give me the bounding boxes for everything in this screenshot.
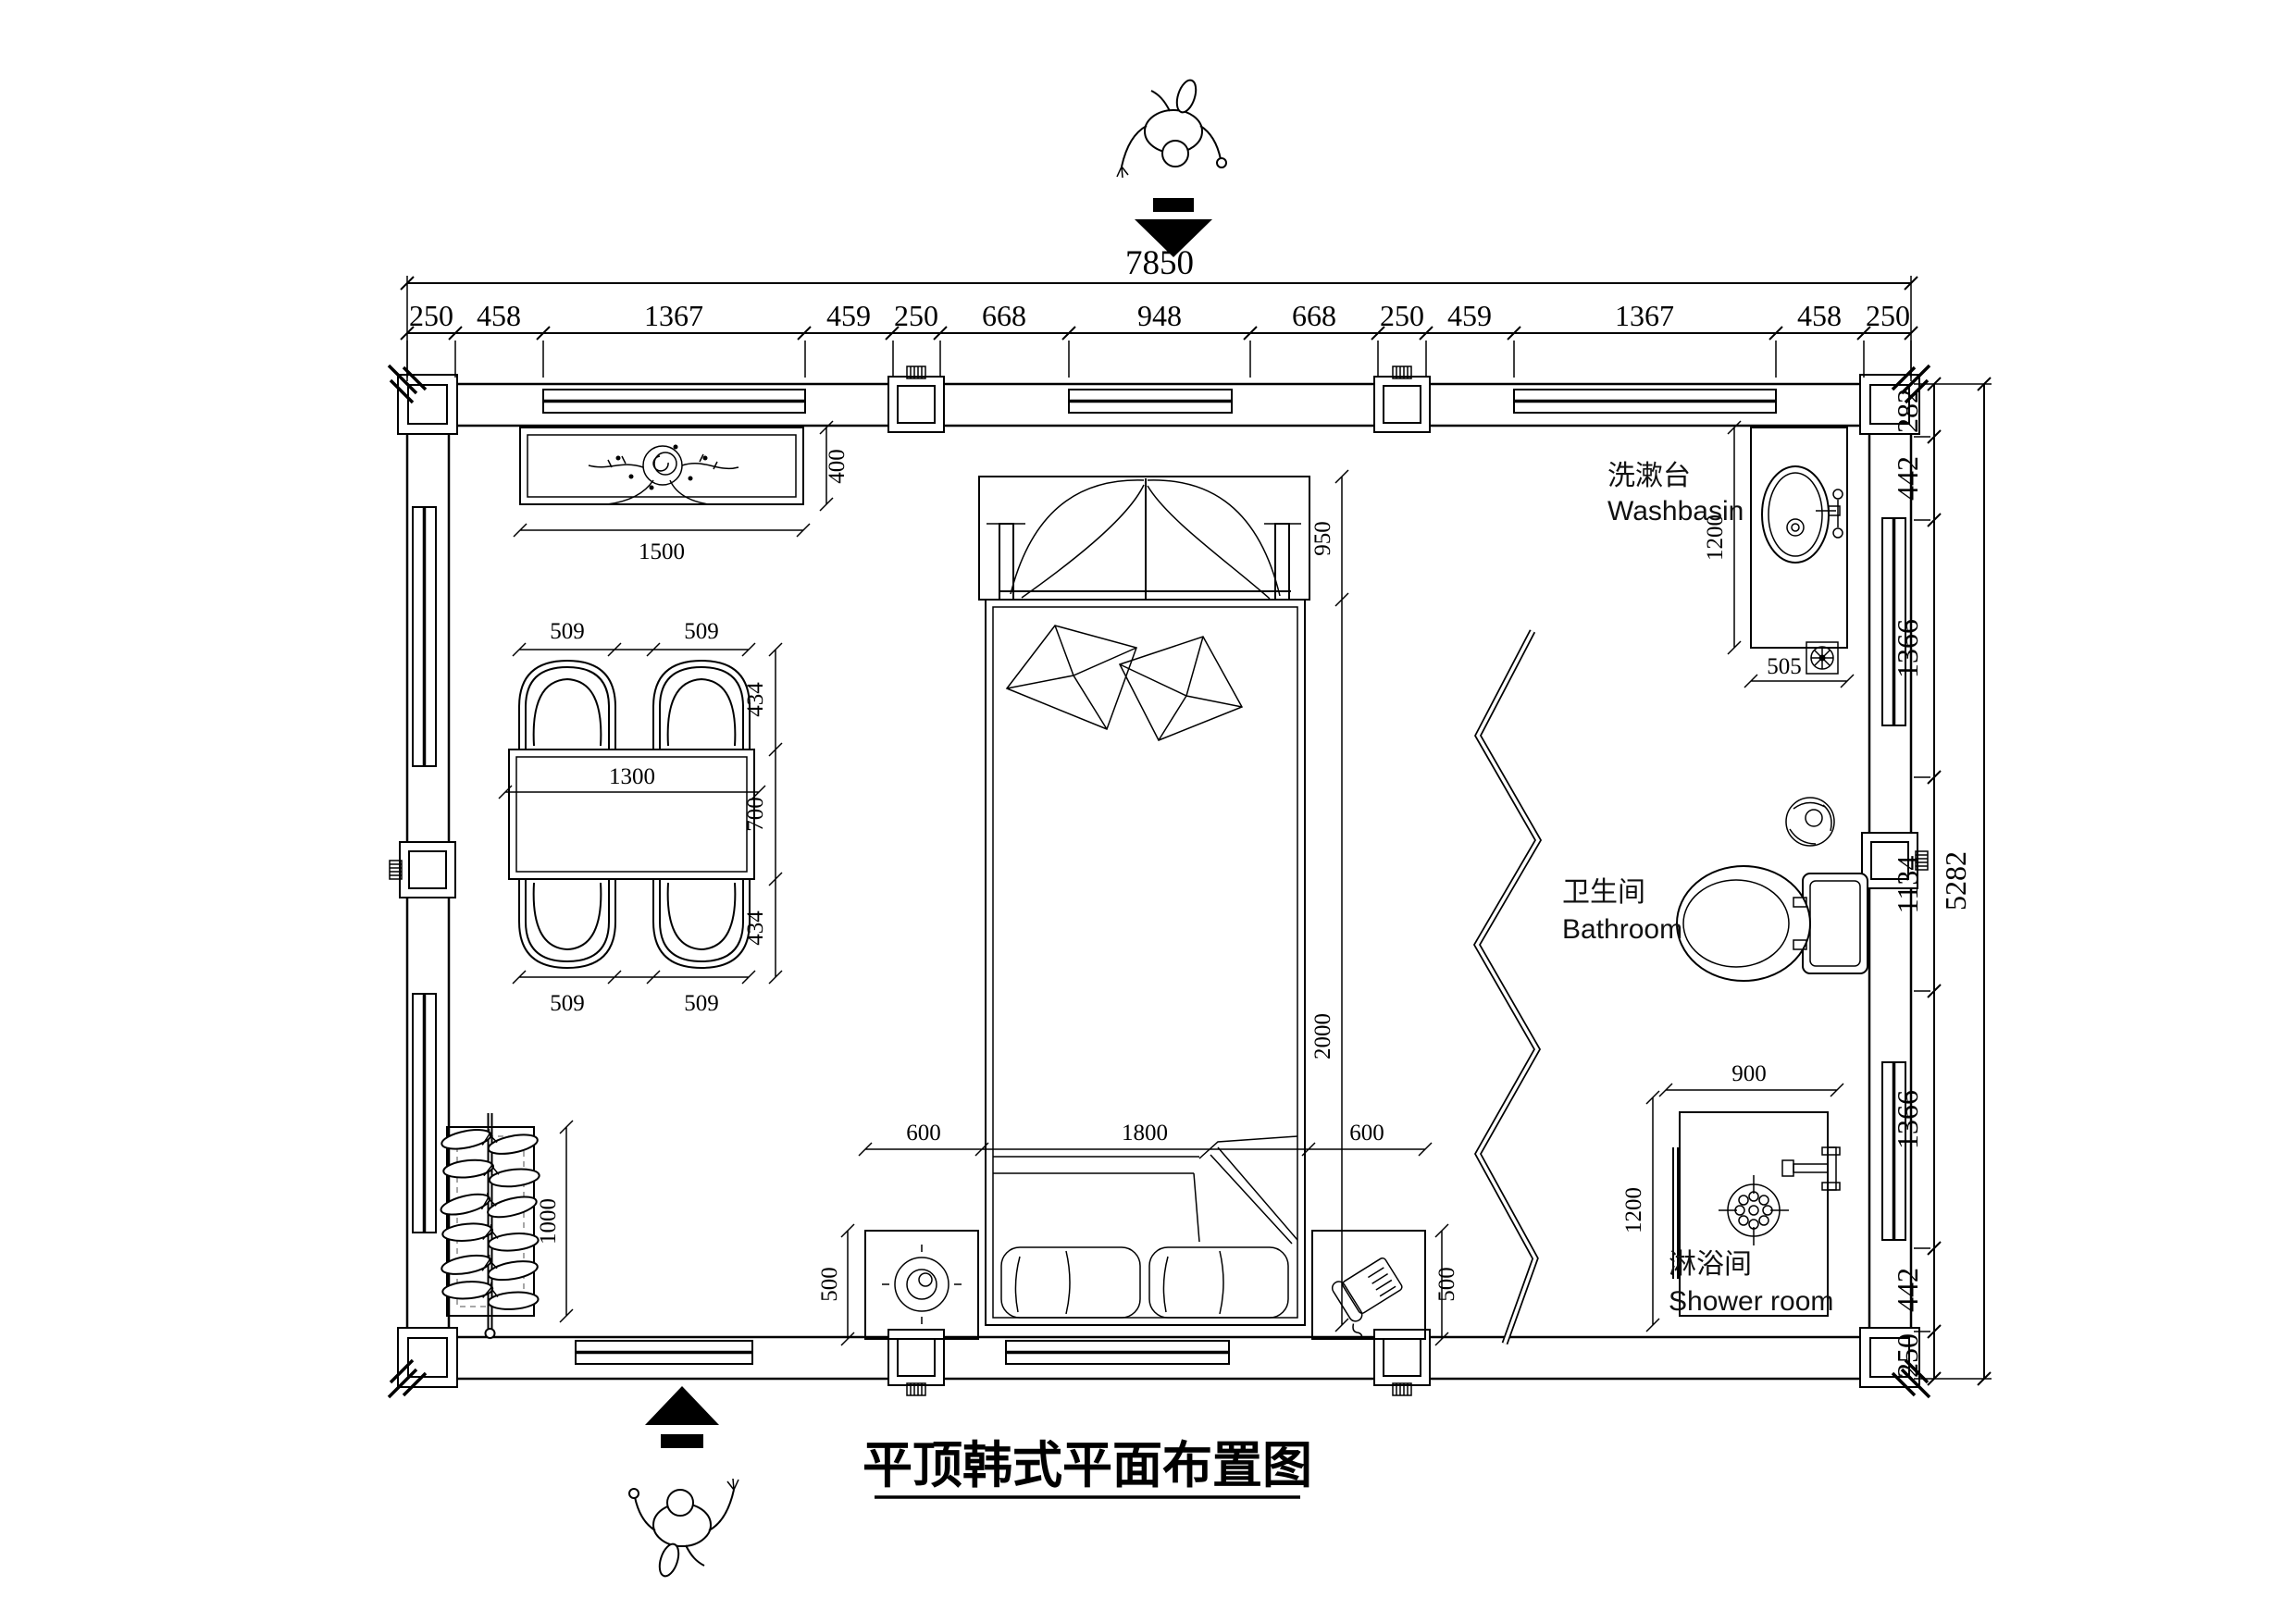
dim-chair-depth-1: 434 <box>743 682 768 717</box>
dim-bed-width: 1800 <box>1122 1121 1168 1146</box>
dim-shower-width: 900 <box>1731 1061 1767 1086</box>
dim-cabinet-depth: 400 <box>825 449 850 484</box>
shower-enclosure <box>1680 1112 1828 1316</box>
plant-decor <box>589 445 738 505</box>
dim-top-12: 250 <box>1866 299 1910 332</box>
clothes-rack: 1000 <box>439 1113 573 1338</box>
dim-right-6: 250 <box>1891 1333 1924 1378</box>
dim-rack-length: 1000 <box>536 1198 561 1245</box>
dim-top-8: 250 <box>1380 299 1424 332</box>
pillow-right <box>1149 1247 1288 1318</box>
dim-top-2: 1367 <box>644 299 703 332</box>
bed <box>986 600 1305 1325</box>
dim-shower-depth: 1200 <box>1621 1187 1646 1233</box>
dim-chair-width-1: 509 <box>550 619 585 644</box>
nightstand-right <box>1312 1231 1425 1341</box>
duvet-fold <box>993 1136 1297 1244</box>
dim-basin-width: 505 <box>1767 654 1802 679</box>
exterior-walls <box>407 384 1911 1379</box>
dim-right-3: 1134 <box>1891 856 1924 914</box>
label-bathroom-zh: 卫生间 <box>1562 877 1645 908</box>
dim-top-11: 458 <box>1797 299 1842 332</box>
entry-top <box>1117 78 1226 257</box>
dim-nightstand-depth-1: 500 <box>817 1267 842 1302</box>
window-bottom-left <box>576 1341 752 1364</box>
bathroom-zone: 卫生间 Bathroom <box>1562 798 1868 981</box>
dim-top-5: 668 <box>982 299 1026 332</box>
decor-pillow-2 <box>1120 637 1242 740</box>
pillow-left <box>1001 1247 1140 1318</box>
dim-top-10: 1367 <box>1615 299 1674 332</box>
dim-right-2: 1366 <box>1891 619 1924 678</box>
dim-nightstand-depth-2: 500 <box>1434 1267 1459 1302</box>
window-right-lower <box>1882 1062 1905 1240</box>
label-shower-zh: 淋浴间 <box>1669 1249 1752 1280</box>
console-cabinet: 1500 400 <box>514 421 850 564</box>
floor-plan-page: 1500 400 509 509 509 509 434 700 434 130… <box>0 0 2296 1623</box>
dim-chair-width-3: 509 <box>550 991 585 1016</box>
top-dimension-chain: 7850 250 458 1367 459 250 668 948 668 25… <box>401 244 1917 381</box>
folding-partition <box>1477 631 1538 1344</box>
entry-arrow-bar-top <box>1153 198 1194 212</box>
shower-zone: 900 1200 淋浴间 Shower room <box>1621 1061 1843 1332</box>
label-washbasin-zh: 洗漱台 <box>1607 461 1691 491</box>
dim-top-0: 250 <box>409 299 453 332</box>
entry-arrow-bottom <box>645 1386 719 1425</box>
dining-set: 509 509 509 509 434 700 434 1300 <box>499 619 782 1016</box>
window-left-upper <box>413 507 436 766</box>
drawing-title: 平顶韩式平面布置图 <box>863 1438 1312 1497</box>
window-bottom-middle <box>1006 1341 1229 1364</box>
shower-drain <box>1719 1175 1789 1245</box>
dim-top-6: 948 <box>1137 299 1182 332</box>
title-text: 平顶韩式平面布置图 <box>863 1438 1312 1493</box>
dim-right-1: 442 <box>1891 456 1924 501</box>
toilet <box>1677 866 1868 981</box>
entry-bottom <box>629 1386 738 1579</box>
floor-plan-canvas: 1500 400 509 509 509 509 434 700 434 130… <box>0 0 2296 1623</box>
exhaust-fan <box>1786 798 1834 846</box>
dim-nightstand-width-1: 600 <box>906 1121 941 1146</box>
dim-top-7: 668 <box>1292 299 1336 332</box>
dim-top-4: 250 <box>894 299 938 332</box>
bed-canopy <box>979 477 1309 600</box>
dim-top-3: 459 <box>826 299 871 332</box>
bed-group: 600 1800 600 950 2000 500 500 <box>817 470 1459 1345</box>
dim-top-1: 458 <box>477 299 521 332</box>
nightstand-left <box>865 1231 978 1339</box>
dim-chair-depth-2: 434 <box>743 911 768 946</box>
dim-right-0: 282 <box>1891 389 1924 433</box>
window-top-middle <box>1069 390 1232 413</box>
window-left-lower <box>413 994 436 1233</box>
window-top-right <box>1514 390 1776 413</box>
dim-top-9: 459 <box>1447 299 1492 332</box>
dim-bed-length: 2000 <box>1310 1013 1335 1059</box>
dim-canopy-depth: 950 <box>1310 521 1335 556</box>
dim-nightstand-width-2: 600 <box>1349 1121 1384 1146</box>
dim-chair-width-4: 509 <box>684 991 719 1016</box>
entry-arrow-bar-bottom <box>661 1434 703 1448</box>
dim-cabinet-width: 1500 <box>639 539 685 564</box>
dim-table-width: 1300 <box>609 764 655 789</box>
decor-pillow-1 <box>1007 626 1136 729</box>
dim-right-total: 5282 <box>1939 851 1972 911</box>
label-shower-en: Shower room <box>1669 1286 1833 1317</box>
dim-right-5: 442 <box>1891 1268 1924 1312</box>
window-top-left <box>543 390 805 413</box>
washbasin-zone: 1200 505 洗漱台 Washbasin <box>1607 421 1854 688</box>
label-bathroom-en: Bathroom <box>1562 914 1682 945</box>
dim-table-depth: 700 <box>743 797 768 832</box>
dim-chair-width-2: 509 <box>684 619 719 644</box>
shower-head <box>1782 1147 1840 1190</box>
dim-right-4: 1366 <box>1891 1090 1924 1149</box>
dim-top-total: 7850 <box>1125 244 1194 282</box>
label-washbasin-en: Washbasin <box>1607 496 1744 527</box>
